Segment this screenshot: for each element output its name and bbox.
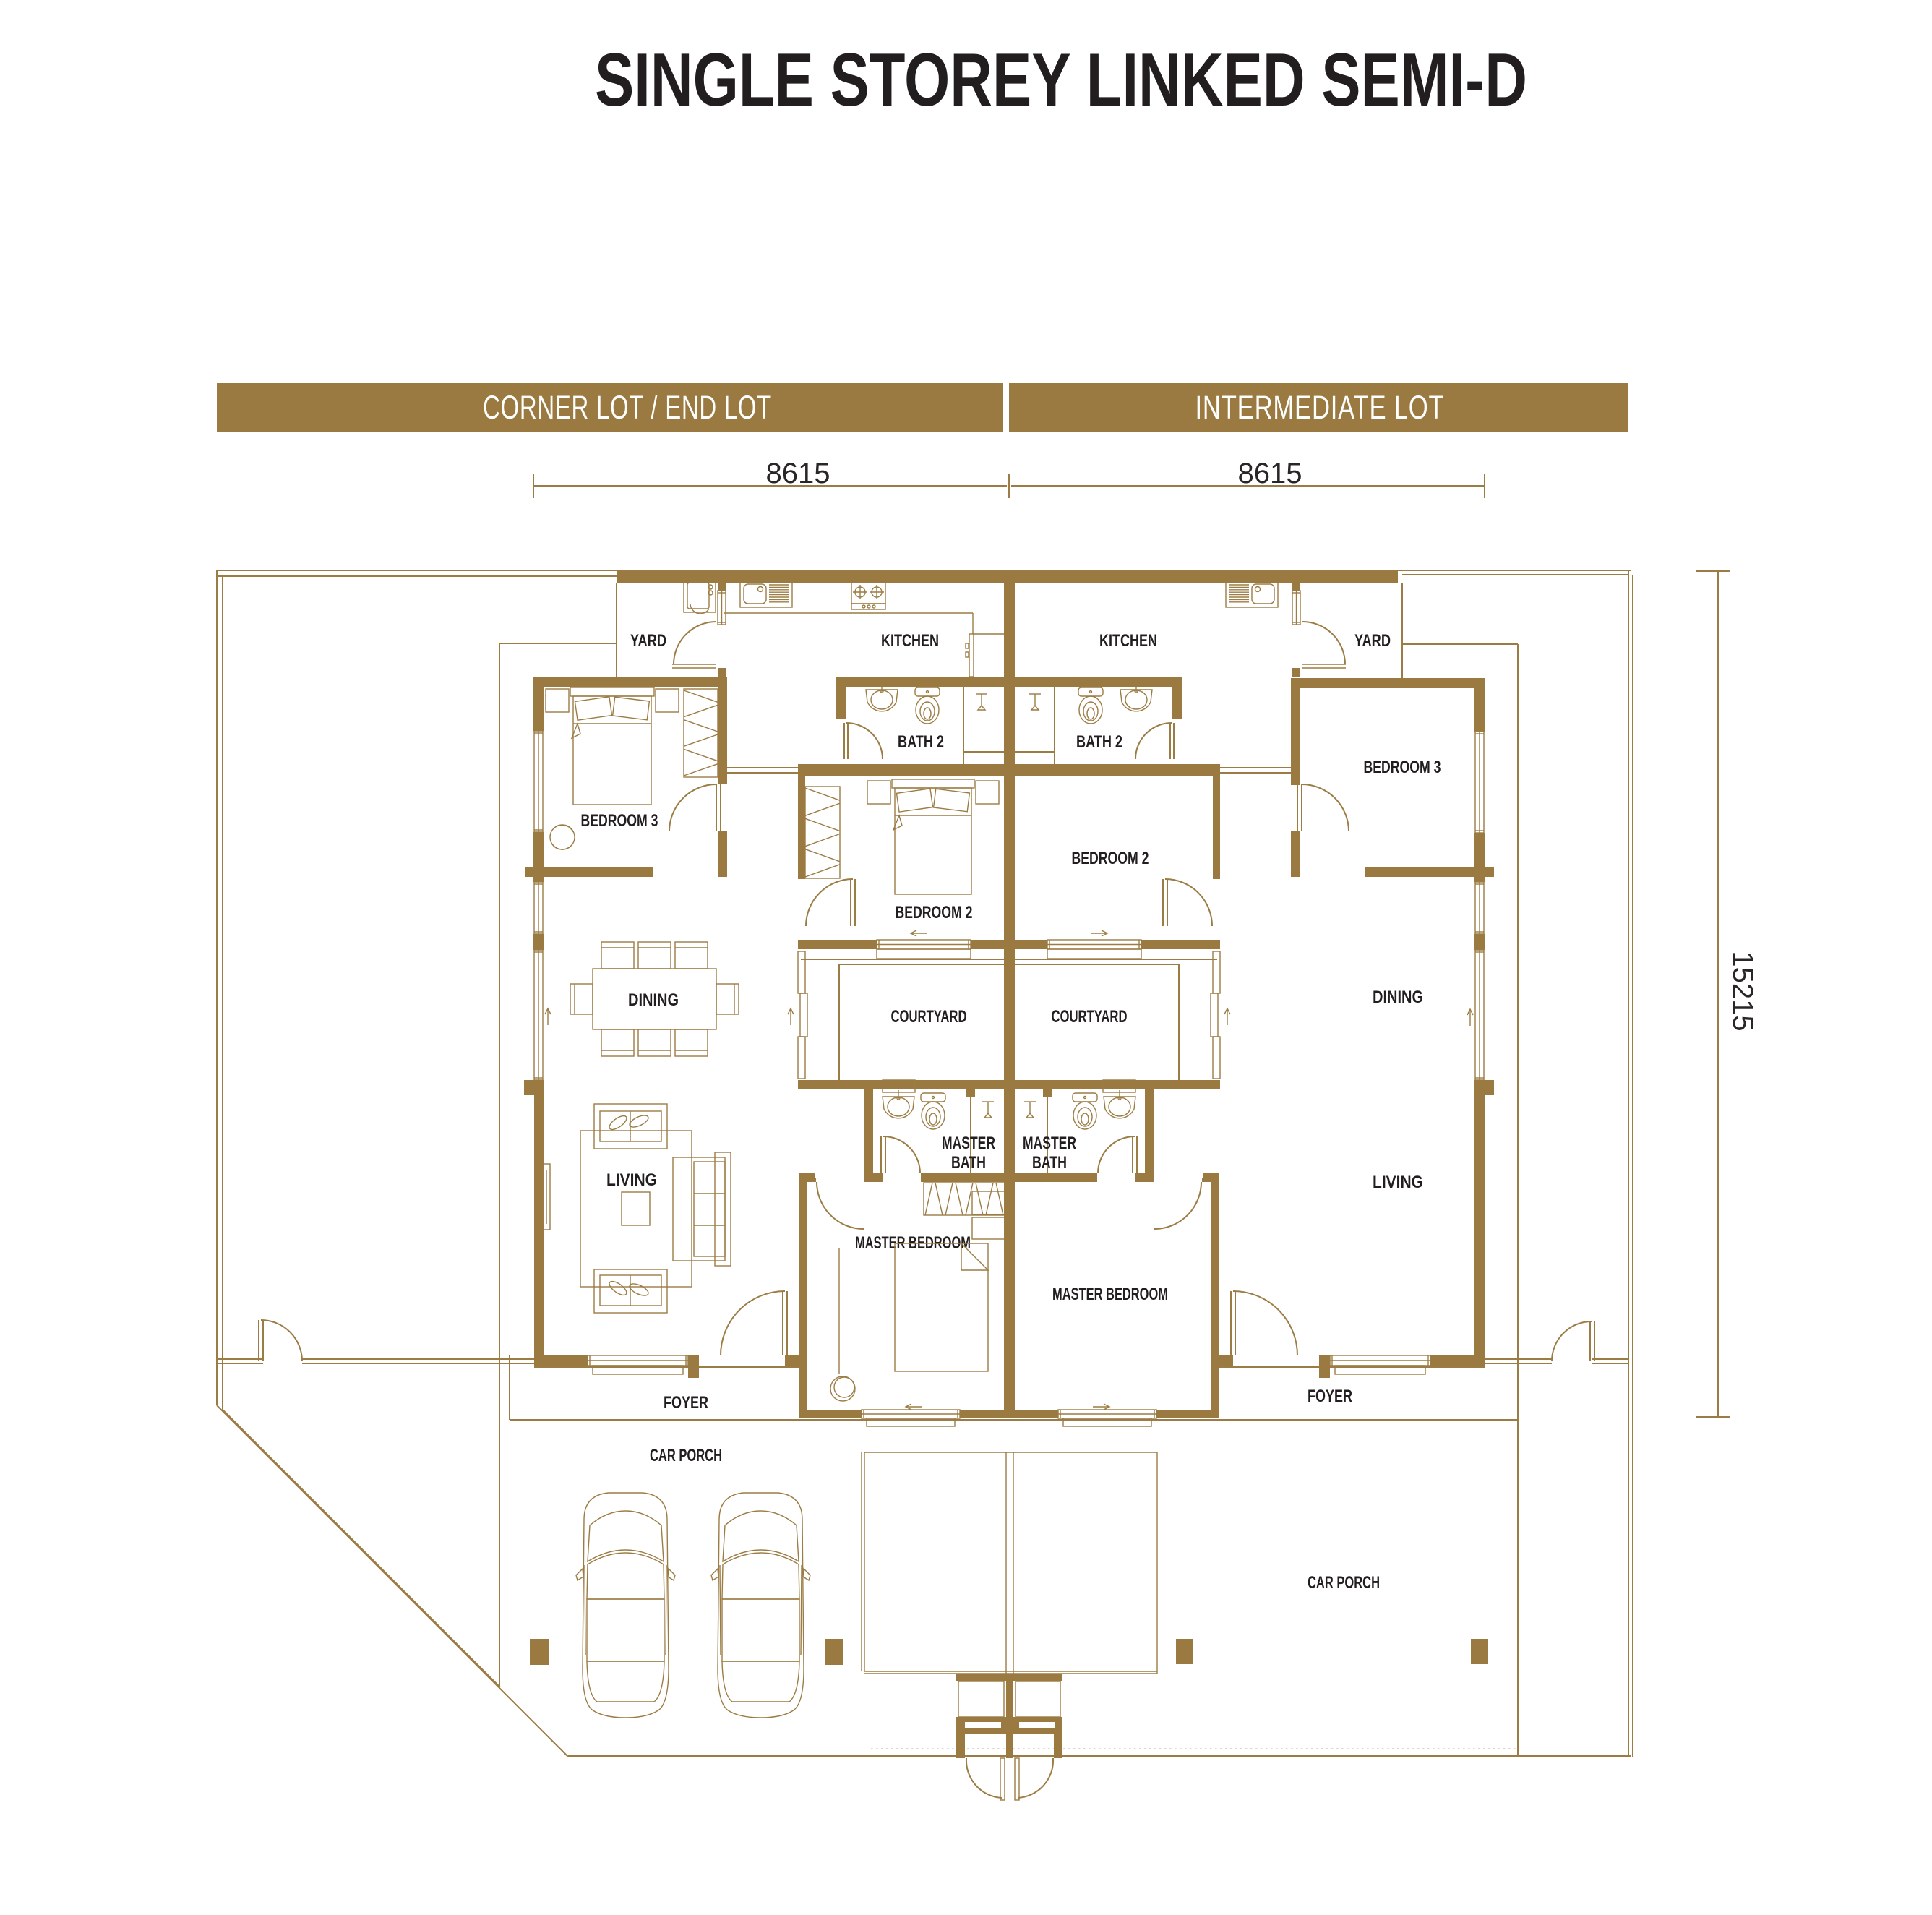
svg-text:8615: 8615 <box>1238 458 1302 489</box>
svg-text:INTERMEDIATE LOT: INTERMEDIATE LOT <box>1195 389 1445 426</box>
svg-text:LIVING: LIVING <box>606 1170 657 1190</box>
svg-text:KITCHEN: KITCHEN <box>1099 631 1157 651</box>
svg-text:DINING: DINING <box>1373 988 1423 1007</box>
svg-text:8615: 8615 <box>766 458 830 489</box>
svg-text:BATH 2: BATH 2 <box>898 732 944 752</box>
svg-text:MASTER: MASTER <box>1023 1134 1076 1153</box>
svg-text:BATH 2: BATH 2 <box>1076 732 1122 752</box>
svg-text:COURTYARD: COURTYARD <box>1052 1007 1128 1027</box>
svg-text:CAR PORCH: CAR PORCH <box>1308 1573 1380 1593</box>
svg-text:DINING: DINING <box>628 990 679 1010</box>
svg-text:BEDROOM 3: BEDROOM 3 <box>581 811 658 831</box>
svg-text:CORNER LOT / END LOT: CORNER LOT / END LOT <box>483 389 772 426</box>
svg-text:FOYER: FOYER <box>1308 1387 1352 1406</box>
svg-text:BATH: BATH <box>1032 1153 1067 1173</box>
svg-text:BEDROOM 3: BEDROOM 3 <box>1364 758 1441 777</box>
svg-text:FOYER: FOYER <box>664 1393 708 1413</box>
svg-text:YARD: YARD <box>1354 631 1391 651</box>
svg-text:COURTYARD: COURTYARD <box>891 1007 967 1027</box>
svg-text:BATH: BATH <box>951 1153 986 1173</box>
svg-text:CAR PORCH: CAR PORCH <box>650 1446 722 1465</box>
svg-text:SINGLE STOREY LINKED SEMI-D: SINGLE STOREY LINKED SEMI-D <box>595 38 1527 122</box>
svg-text:MASTER: MASTER <box>942 1134 995 1153</box>
svg-text:MASTER BEDROOM: MASTER BEDROOM <box>1052 1285 1168 1304</box>
svg-text:BEDROOM 2: BEDROOM 2 <box>896 903 973 922</box>
svg-text:KITCHEN: KITCHEN <box>881 631 939 651</box>
svg-text:YARD: YARD <box>630 631 666 651</box>
svg-text:LIVING: LIVING <box>1373 1173 1423 1192</box>
svg-text:BEDROOM 2: BEDROOM 2 <box>1072 849 1149 868</box>
svg-text:15215: 15215 <box>1727 951 1759 1031</box>
